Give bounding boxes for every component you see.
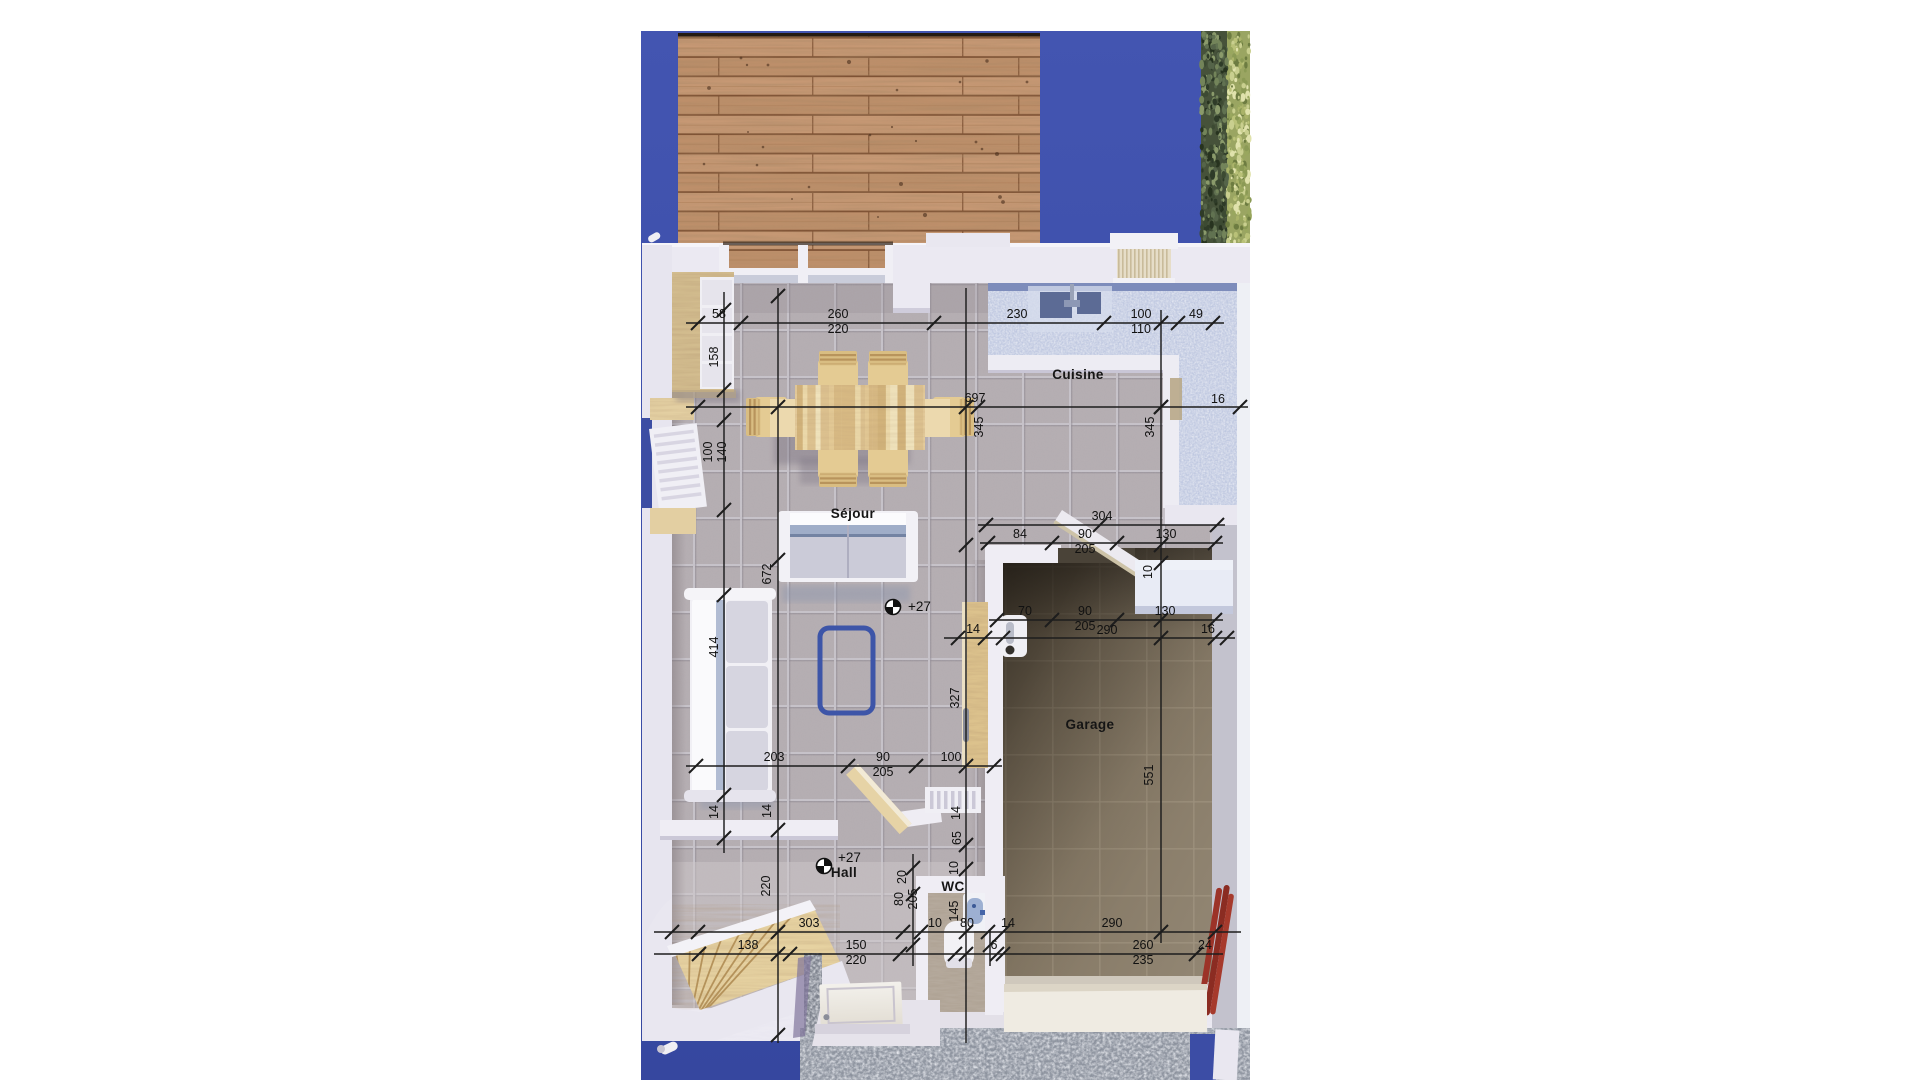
svg-text:6: 6 [991,938,998,952]
svg-text:Séjour: Séjour [831,506,876,521]
svg-text:158: 158 [707,347,721,368]
svg-text:70: 70 [1018,604,1032,618]
svg-text:230: 230 [1007,307,1028,321]
svg-text:290: 290 [1097,623,1118,637]
svg-text:84: 84 [1013,527,1027,541]
svg-text:260: 260 [1133,938,1154,952]
svg-text:345: 345 [1143,417,1157,438]
svg-text:303: 303 [799,916,820,930]
svg-text:16: 16 [1211,392,1225,406]
svg-text:WC: WC [941,879,964,894]
svg-text:100: 100 [941,750,962,764]
svg-text:14: 14 [1001,916,1015,930]
svg-text:697: 697 [965,391,986,405]
svg-text:20: 20 [895,870,909,884]
svg-text:58: 58 [712,307,726,321]
svg-text:414: 414 [707,637,721,658]
svg-text:203: 203 [764,750,785,764]
svg-text:235: 235 [1133,953,1154,967]
svg-text:672: 672 [760,564,774,585]
svg-text:49: 49 [1189,307,1203,321]
svg-text:24: 24 [1198,938,1212,952]
svg-text:80: 80 [892,892,906,906]
svg-text:Hall: Hall [831,865,857,880]
svg-text:10: 10 [947,861,961,875]
svg-text:205: 205 [906,889,920,910]
svg-text:100: 100 [701,442,715,463]
svg-text:14: 14 [949,806,963,820]
svg-text:Garage: Garage [1066,717,1115,732]
svg-text:14: 14 [707,805,721,819]
svg-text:90: 90 [876,750,890,764]
svg-text:16: 16 [1201,622,1215,636]
svg-text:10: 10 [1141,565,1155,579]
svg-text:205: 205 [873,765,894,779]
svg-text:551: 551 [1142,765,1156,786]
svg-text:10: 10 [928,916,942,930]
svg-text:220: 220 [828,322,849,336]
svg-text:205: 205 [1075,542,1096,556]
svg-text:130: 130 [1155,604,1176,618]
svg-text:14: 14 [760,804,774,818]
svg-text:80: 80 [960,916,974,930]
svg-text:220: 220 [846,953,867,967]
svg-text:150: 150 [846,938,867,952]
svg-text:+27: +27 [838,850,861,865]
svg-text:304: 304 [1092,509,1113,523]
svg-text:65: 65 [950,831,964,845]
svg-text:145: 145 [947,901,961,922]
svg-text:90: 90 [1078,527,1092,541]
svg-text:205: 205 [1075,619,1096,633]
svg-text:130: 130 [1156,527,1177,541]
svg-text:327: 327 [948,688,962,709]
svg-text:+27: +27 [908,599,931,614]
svg-text:90: 90 [1078,604,1092,618]
svg-text:14: 14 [966,622,980,636]
svg-text:Cuisine: Cuisine [1052,367,1104,382]
svg-text:138: 138 [738,938,759,952]
svg-text:100: 100 [1131,307,1152,321]
svg-text:290: 290 [1102,916,1123,930]
svg-text:220: 220 [759,876,773,897]
svg-text:140: 140 [715,442,729,463]
svg-text:110: 110 [1131,322,1151,336]
svg-text:260: 260 [828,307,849,321]
svg-text:345: 345 [972,417,986,438]
